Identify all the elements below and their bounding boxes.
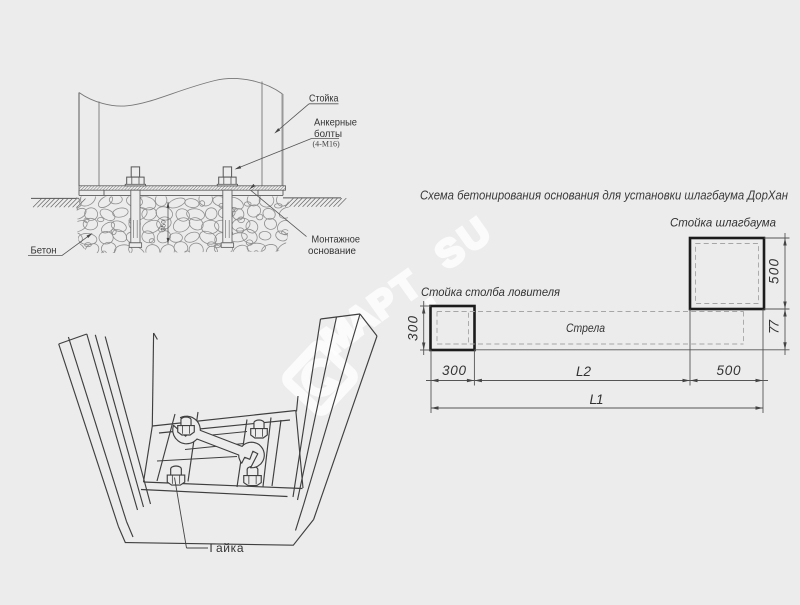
svg-text:350: 350 — [161, 220, 168, 231]
svg-text:L2: L2 — [576, 364, 591, 379]
svg-text:L1: L1 — [590, 392, 604, 407]
svg-text:Монтажное: Монтажное — [312, 234, 361, 246]
svg-text:Схема бетонирования основания: Схема бетонирования основания для устано… — [420, 189, 788, 203]
svg-text:Стойка столба ловителя: Стойка столба ловителя — [421, 285, 561, 299]
svg-text:основание: основание — [308, 245, 356, 257]
svg-text:500: 500 — [717, 363, 741, 378]
svg-text:Бетон: Бетон — [31, 245, 57, 257]
svg-text:Анкерные: Анкерные — [314, 117, 357, 129]
svg-text:300: 300 — [442, 363, 466, 378]
svg-text:Стойка: Стойка — [309, 93, 339, 105]
svg-text:(4-М16): (4-М16) — [313, 140, 340, 149]
svg-text:300: 300 — [406, 316, 421, 341]
svg-text:Стойка шлагбаума: Стойка шлагбаума — [670, 216, 776, 230]
svg-text:Гайка: Гайка — [210, 541, 244, 555]
svg-text:500: 500 — [767, 259, 782, 284]
svg-text:77: 77 — [767, 320, 782, 334]
svg-text:болты: болты — [314, 128, 342, 140]
svg-text:Стрела: Стрела — [566, 321, 605, 335]
